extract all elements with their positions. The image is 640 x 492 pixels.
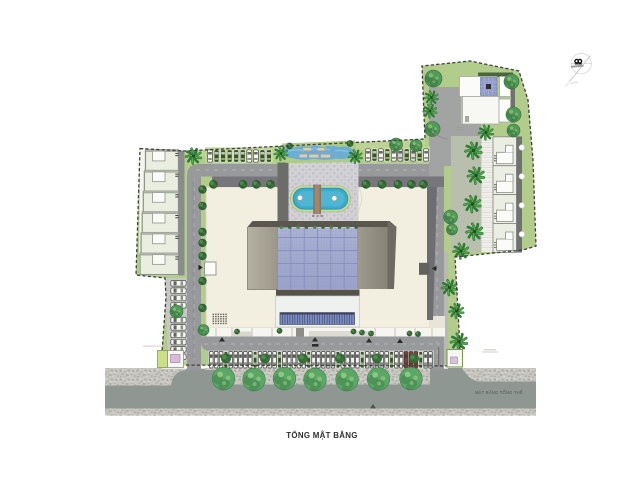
svg-text:MẶT BẰNG TỔNG THỂ: MẶT BẰNG TỔNG THỂ [475, 390, 523, 395]
svg-text:TỔNG MẬT BẰNG: TỔNG MẬT BẰNG [286, 431, 357, 440]
